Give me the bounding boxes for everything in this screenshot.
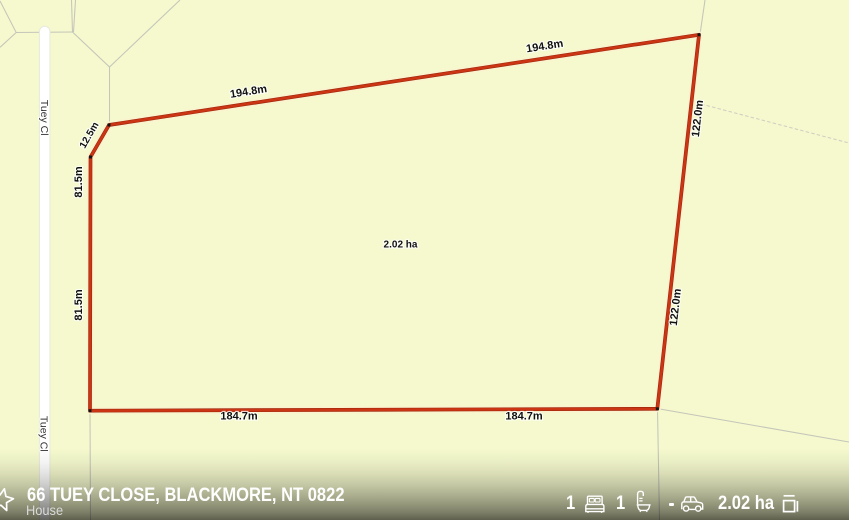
svg-text:Tuey Cl: Tuey Cl: [38, 416, 50, 452]
svg-text:184.7m: 184.7m: [505, 411, 543, 423]
svg-text:2.02 ha: 2.02 ha: [384, 240, 418, 251]
svg-text:81.5m: 81.5m: [73, 289, 85, 320]
svg-text:Tuey Cl: Tuey Cl: [38, 100, 50, 136]
svg-text:81.5m: 81.5m: [73, 166, 85, 197]
svg-text:184.7m: 184.7m: [220, 411, 258, 423]
svg-text:194.8m: 194.8m: [525, 38, 564, 56]
